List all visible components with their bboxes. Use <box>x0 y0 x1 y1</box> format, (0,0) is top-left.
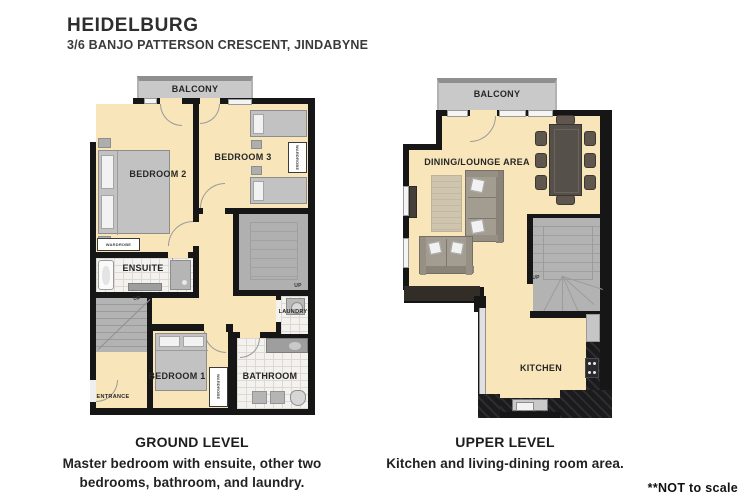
upper-left-window-2 <box>403 238 409 268</box>
dining-chair-right-1 <box>584 131 596 146</box>
stair-void-inner <box>250 222 298 280</box>
upper-stairs-inner <box>543 226 593 280</box>
bedroom3-label: BEDROOM 3 <box>198 153 288 162</box>
hall-arm-right-floor <box>233 296 276 332</box>
dining-chair-left-3 <box>535 175 547 190</box>
page-title: HEIDELBURG <box>67 16 199 35</box>
dining-label: DINING/LOUNGE AREA <box>417 158 537 167</box>
upper-window-2 <box>499 110 526 117</box>
bedroom2-hall-door-gap <box>193 222 199 246</box>
floorplan-page: HEIDELBURG 3/6 BANJO PATTERSON CRESCENT,… <box>0 0 750 500</box>
scale-note: **NOT to scale <box>560 482 738 495</box>
bedroom2-window <box>144 98 157 104</box>
kitchen-label: KITCHEN <box>511 364 571 373</box>
bathroom-vanity <box>266 338 308 353</box>
upper-caption: UPPER LEVEL Kitchen and living-dining ro… <box>355 434 655 473</box>
upper-balcony-label: BALCONY <box>457 90 537 99</box>
dining-chair-left-1 <box>535 131 547 146</box>
dining-chair-bottom <box>556 195 575 205</box>
bedroom1-bed <box>155 333 207 391</box>
ensuite-label: ENSUITE <box>103 264 183 273</box>
bathroom-label: BATHROOM <box>225 372 315 381</box>
bathroom-mat-1 <box>252 391 267 404</box>
bedroom2-nightstand-top <box>98 138 111 148</box>
upper-caption-line1: Kitchen and living-dining room area. <box>355 454 655 473</box>
ground-caption-line2: bedrooms, bathroom, and laundry. <box>32 473 352 492</box>
ground-balcony-label: BALCONY <box>155 85 235 94</box>
bedroom1-door-gap <box>204 324 226 331</box>
kitchen-counter-light <box>586 314 600 342</box>
kitchen-sink <box>512 399 548 411</box>
dining-chair-right-2 <box>584 153 596 168</box>
bedroom1-label: BEDROOM 1 <box>132 372 222 381</box>
bedroom2-wardrobe: WARDROBE <box>97 238 140 251</box>
bedroom3-bed-top <box>250 110 307 137</box>
ground-caption-title: GROUND LEVEL <box>32 434 352 450</box>
bedroom3-wardrobe-label: WARDROBE <box>295 145 300 170</box>
bedroom1-top-wall <box>147 324 205 331</box>
kitchen-counter-corner-right <box>560 390 612 418</box>
ground-caption: GROUND LEVEL Master bedroom with ensuite… <box>32 434 352 492</box>
rug <box>431 175 462 232</box>
bedroom3-bed-bottom <box>250 177 307 204</box>
entrance-label: ENTRANCE <box>92 395 134 401</box>
ensuite-vanity <box>128 283 162 291</box>
stair-void-up-label: UP <box>290 284 306 289</box>
kitchen-glazing <box>479 308 486 400</box>
dining-chair-right-3 <box>584 175 596 190</box>
stairs-lower-up-label: UP <box>128 297 146 302</box>
page-address: 3/6 BANJO PATTERSON CRESCENT, JINDABYNE <box>67 39 368 52</box>
upper-window-1 <box>447 110 468 117</box>
bedroom3-hall-door-gap <box>203 208 225 214</box>
laundry-label: LAUNDRY <box>272 310 314 316</box>
hall-column-floor <box>199 214 233 332</box>
living-band-wall <box>404 286 480 303</box>
kitchen-counter-corner-left <box>478 394 500 418</box>
bedroom2-bed <box>98 150 170 234</box>
loveseat <box>419 236 473 274</box>
ground-caption-line1: Master bedroom with ensuite, other two <box>32 454 352 473</box>
bedroom1-top-wall-corner <box>226 324 233 332</box>
bedroom2-label: BEDROOM 2 <box>113 170 203 179</box>
dining-chair-top <box>556 115 575 125</box>
stairs-fan-4 <box>562 276 563 312</box>
sofa-main <box>465 170 504 242</box>
stove <box>585 358 599 378</box>
bedroom3-wardrobe: WARDROBE <box>288 142 307 173</box>
hall-arm-left-floor <box>152 298 199 324</box>
bedroom2-wardrobe-label: WARDROBE <box>106 242 131 247</box>
tv-unit <box>409 186 417 218</box>
upper-caption-title: UPPER LEVEL <box>355 434 655 450</box>
upper-stairs-up-label: UP <box>528 276 544 281</box>
bedroom3-nightstand-bottom <box>251 166 262 175</box>
bedroom3-window <box>228 99 252 105</box>
bathroom-mat-2 <box>270 391 285 404</box>
dining-table <box>549 124 582 196</box>
bedroom3-nightstand-top <box>251 140 262 149</box>
bathroom-toilet <box>290 390 306 406</box>
stairwell-left-wall <box>527 216 533 284</box>
upper-window-3 <box>528 110 553 117</box>
